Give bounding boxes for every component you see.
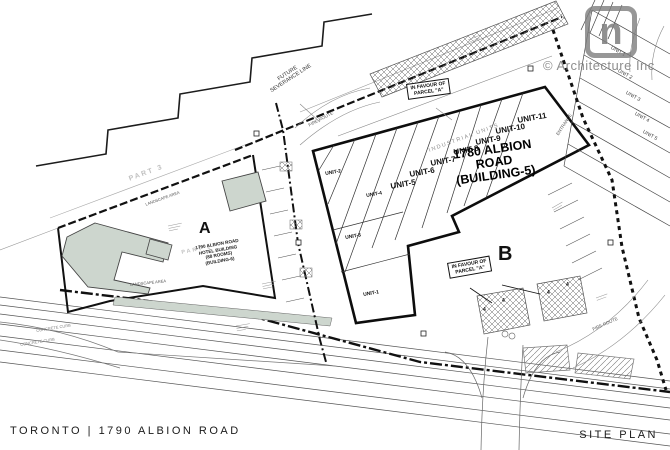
east-dotted-line	[553, 30, 666, 390]
stepped-boundary-line	[36, 14, 372, 166]
north-hatched-strip	[370, 1, 568, 97]
stall-count-3: 4	[547, 291, 550, 297]
parcel-a-label: A	[199, 220, 212, 238]
mid-parking-stalls	[262, 162, 312, 302]
architecture-logo-icon: n	[585, 6, 637, 58]
sheet-title: SITE PLAN	[579, 429, 658, 441]
albion-road-lines	[0, 297, 670, 446]
parcel-b-label: B	[498, 243, 513, 265]
stall-count-1: 4	[483, 308, 486, 314]
project-title: TORONTO | 1790 ALBION ROAD	[10, 425, 241, 437]
site-plan-page: A B PART 3 PART 1 1790 ALBION ROAD HOTEL…	[0, 0, 670, 450]
stall-count-2: 4	[502, 299, 505, 305]
architecture-watermark-text: © Architecture Inc	[543, 58, 655, 73]
east-parking-stalls	[548, 183, 602, 280]
favour-parcel-stalls	[470, 276, 587, 339]
stall-count-4: 4	[566, 283, 569, 289]
